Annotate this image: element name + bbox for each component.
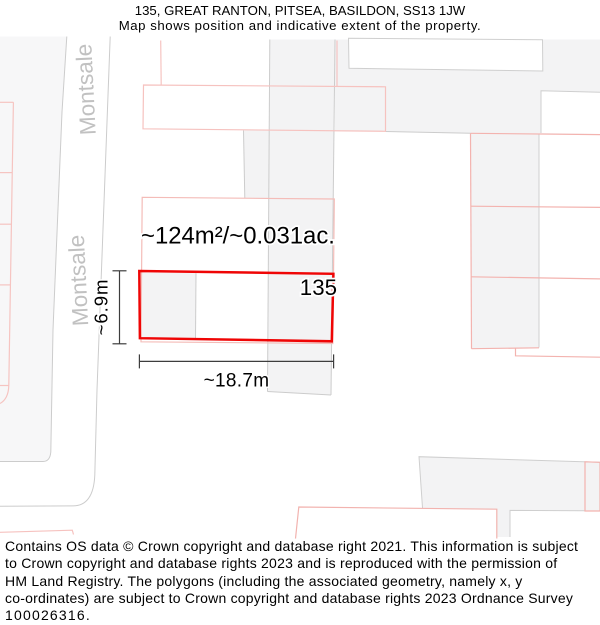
svg-text:~124m²/~0.031ac.: ~124m²/~0.031ac. [141, 223, 335, 250]
svg-text:Montsale: Montsale [71, 43, 100, 135]
svg-text:~18.7m: ~18.7m [204, 371, 270, 392]
svg-text:~6.9m: ~6.9m [91, 279, 112, 336]
svg-text:Montsale: Montsale [64, 234, 93, 326]
svg-text:135: 135 [300, 275, 337, 300]
